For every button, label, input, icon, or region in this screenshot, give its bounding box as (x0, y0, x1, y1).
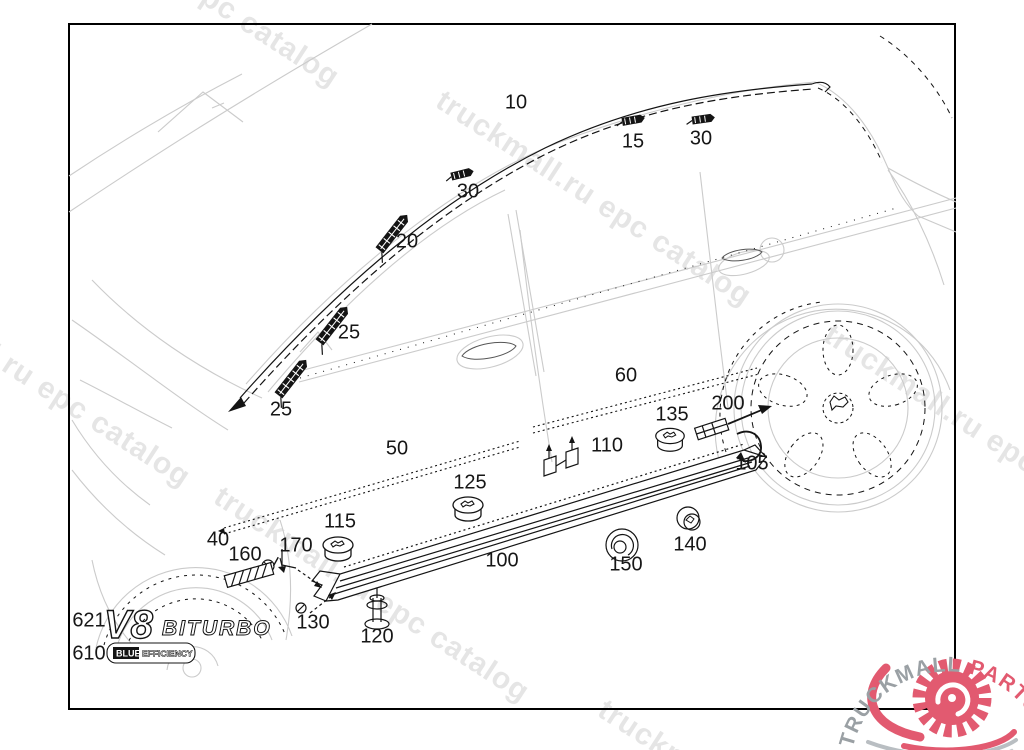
moulding-clips (270, 113, 716, 407)
badge-biturbo-text: BITURBO (162, 617, 272, 640)
v8-biturbo-badge: V8 BITURBO (104, 603, 272, 647)
car-parts-line-art: V8 BITURBO BLUE EFFICIENCY TRUCKMALL (0, 0, 1024, 750)
wheel-dashed-details (104, 36, 952, 648)
roof-moulding-strip (228, 82, 830, 412)
parts-diagram-stage: truckmall.ru epc catalogtruckmall.ru epc… (0, 0, 1024, 750)
badge-v8-text: V8 (104, 603, 154, 647)
blue-efficiency-badge: BLUE EFFICIENCY (107, 643, 195, 663)
badge-blue-text: BLUE (116, 649, 141, 659)
truckmall-parts-logo: TRUCKMALL PARTS (835, 653, 1024, 750)
car-body-outline (69, 24, 956, 677)
door-moulding-strips (218, 368, 759, 534)
fasteners (223, 405, 772, 629)
badge-efficiency-text: EFFICIENCY (142, 649, 193, 659)
